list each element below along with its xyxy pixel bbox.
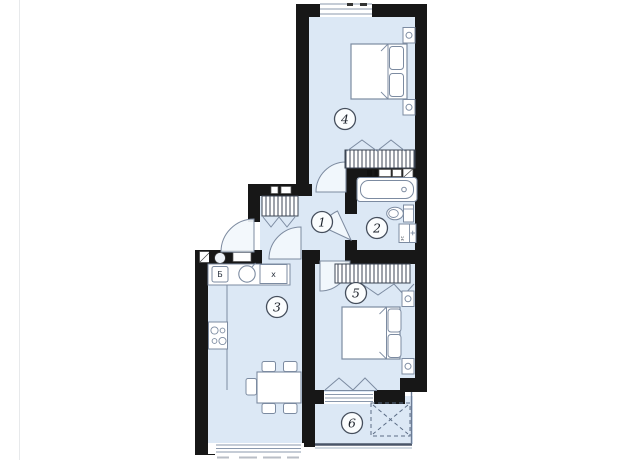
faucet-tick: [375, 170, 378, 176]
room-badge-5: 5: [346, 283, 367, 304]
window-room-4: [320, 2, 372, 17]
room-number: 6: [348, 416, 356, 431]
wall: [248, 184, 260, 222]
chair-icon: [246, 379, 257, 396]
chair-icon: [284, 404, 298, 414]
appliance-label: Б: [217, 270, 223, 279]
room-number: 5: [352, 286, 360, 301]
room-badge-1: 1: [312, 212, 333, 233]
window-tick: [360, 3, 367, 6]
wall: [400, 378, 427, 392]
room-number: 4: [340, 112, 349, 127]
wall: [296, 4, 309, 196]
double-bed-icon: [342, 307, 401, 359]
nightstand-icon: [402, 291, 414, 307]
window-tick: [347, 3, 353, 6]
wall: [302, 390, 324, 404]
room-number: 3: [273, 300, 281, 315]
floor-plan-screenshot: зс Б x: [0, 0, 620, 460]
room-badge-2: 2: [367, 218, 388, 239]
wall: [374, 390, 405, 404]
nightstand-icon: [402, 359, 414, 375]
room-number: 2: [372, 221, 381, 236]
wall: [302, 250, 315, 447]
stove-icon: [209, 322, 228, 349]
nightstand-icon: [403, 100, 415, 116]
chair-icon: [262, 404, 276, 414]
wall: [195, 250, 208, 455]
chair-icon: [284, 362, 298, 372]
room-3-floor: [206, 262, 304, 448]
room-badge-3: 3: [267, 297, 288, 318]
box-label: x: [271, 270, 276, 279]
room-badge-6: 6: [342, 413, 363, 434]
room-badge-4: 4: [335, 109, 356, 130]
hood-circle-icon: [215, 253, 226, 264]
wall-slot: [233, 253, 251, 262]
double-bed-icon: [351, 44, 407, 99]
washer-label: зс: [401, 236, 406, 241]
wall: [345, 168, 357, 214]
floor-plan-svg: зс Б x: [0, 0, 620, 460]
balcony-door-threshold: [324, 392, 374, 404]
washing-machine-icon: зс: [399, 224, 416, 243]
room-number: 1: [318, 215, 326, 230]
bathtub-icon: [357, 178, 417, 202]
hall-wall-shaft: [271, 187, 291, 194]
nightstand-icon: [403, 28, 415, 44]
chair-icon: [262, 362, 276, 372]
faucet-tick: [367, 170, 372, 176]
wall: [350, 250, 427, 264]
sink-icon: [239, 266, 255, 282]
